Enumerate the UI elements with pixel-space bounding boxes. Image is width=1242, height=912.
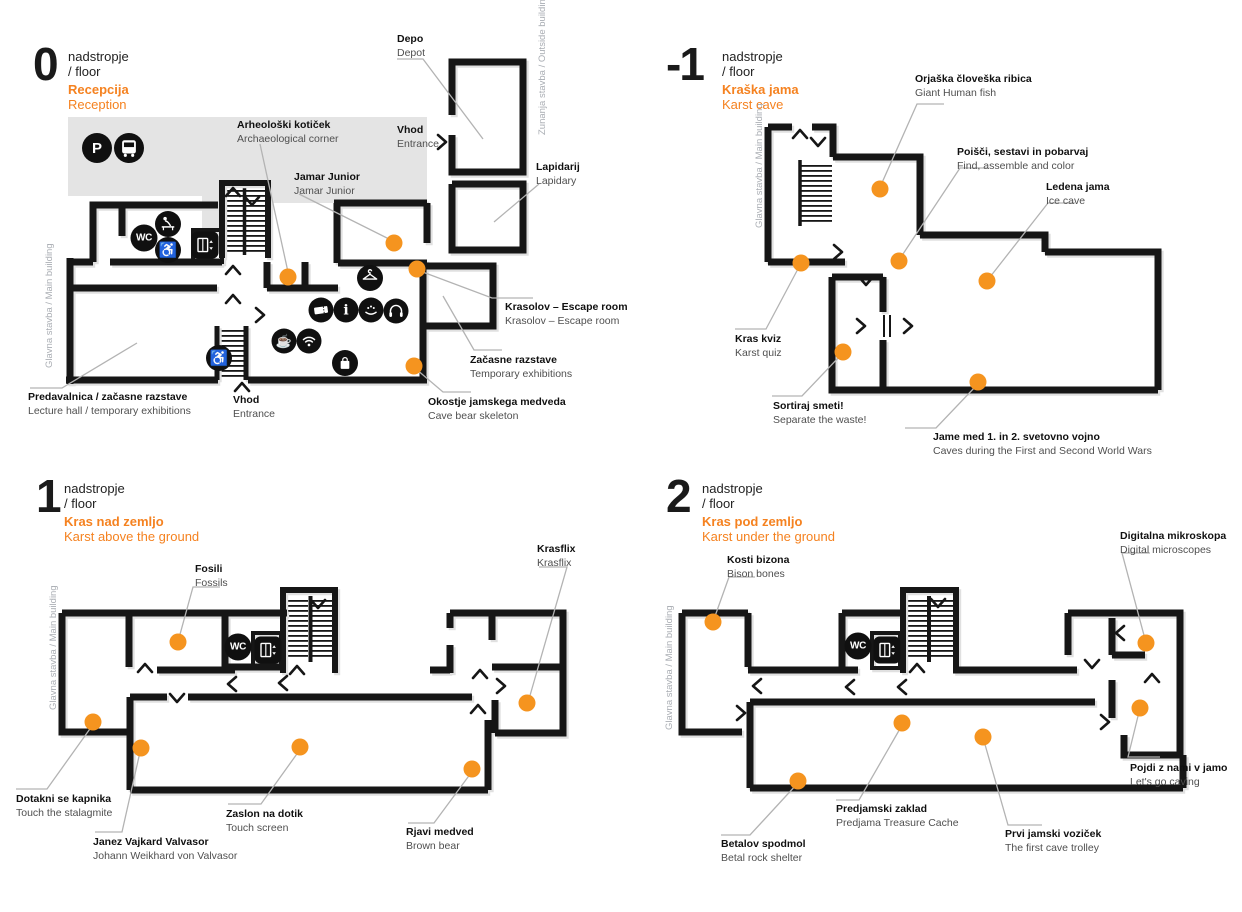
floor-word: / floor — [68, 65, 129, 80]
floor-1-number: 1 — [36, 476, 60, 517]
label-separate-waste: Sortiraj smeti!Separate the waste! — [773, 400, 866, 427]
poi-dot — [793, 255, 810, 272]
floor-1-header: nadstropje / floor Kras nad zemljo Karst… — [64, 482, 199, 544]
poi-dot — [891, 253, 908, 270]
poi-dot — [835, 344, 852, 361]
label-caves-world-wars: Jame med 1. in 2. svetovno vojnoCaves du… — [933, 431, 1152, 458]
label-valvasor: Janez Vajkard ValvasorJohann Weikhard vo… — [93, 836, 237, 863]
door-marks — [884, 315, 890, 337]
wheelchair-lift-icon: ♿ — [206, 345, 232, 371]
cafe-icon: ☕ — [272, 329, 297, 354]
label-karst-quiz: Kras kvizKarst quiz — [735, 333, 782, 360]
elevator-icon — [874, 637, 901, 664]
outside-building-caption: Zunanja stavba / Outside building — [537, 0, 548, 135]
info-icon: i — [334, 298, 359, 323]
parking-icon: P — [82, 133, 112, 163]
shop-bag-icon — [332, 350, 358, 376]
floor-2-title-en: Karst under the ground — [702, 530, 835, 545]
audio-guide-icon — [384, 299, 409, 324]
floor-2-title-sl: Kras pod zemljo — [702, 515, 835, 530]
poi-dot — [133, 740, 150, 757]
poi-dot — [790, 773, 807, 790]
floor-0-title-en: Reception — [68, 98, 129, 113]
poi-dot — [409, 261, 426, 278]
floor--1-header: nadstropje / floor Kraška jama Karst cav… — [722, 50, 799, 112]
poi-dot — [85, 714, 102, 731]
ticket-icon — [309, 298, 334, 323]
bus-icon — [114, 133, 144, 163]
poi-dot — [519, 695, 536, 712]
poi-dot — [280, 269, 297, 286]
floor-2-number: 2 — [666, 476, 690, 517]
label-jamar-junior: Jamar JuniorJamar Junior — [294, 171, 360, 198]
floor-word: / floor — [702, 497, 835, 512]
level-word: nadstropje — [68, 50, 129, 65]
label-first-cave-trolley: Prvi jamski vozičekThe first cave trolle… — [1005, 828, 1101, 855]
label-predjama-treasure: Predjamski zakladPredjama Treasure Cache — [836, 803, 959, 830]
label-ice-cave: Ledena jamaIce cave — [1046, 181, 1110, 208]
label-betal-rock-shelter: Betalov spodmolBetal rock shelter — [721, 838, 806, 865]
poi-dot — [894, 715, 911, 732]
label-giant-human-fish: Orjaška človeška ribicaGiant Human fish — [915, 73, 1032, 100]
poi-dot — [705, 614, 722, 631]
label-depot: DepoDepot — [397, 33, 425, 60]
floor-word: / floor — [722, 65, 799, 80]
poi-dot — [292, 739, 309, 756]
label-fossils: FosiliFossils — [195, 563, 228, 590]
elevator-icon — [192, 232, 219, 259]
baby-changing-icon — [155, 211, 181, 237]
wifi-icon — [297, 329, 322, 354]
wheelchair-icon: ♿ — [155, 237, 181, 263]
label-lets-go-caving: Pojdi z nami v jamoLet's go caving — [1130, 762, 1227, 789]
label-touch-screen: Zaslon na dotikTouch screen — [226, 808, 303, 835]
label-bison-bones: Kosti bizonaBison bones — [727, 554, 789, 581]
floor-0-number: 0 — [33, 44, 57, 85]
poi-dot — [1138, 635, 1155, 652]
main-building-caption-floor-1: Glavna stavba / Main building — [754, 103, 765, 228]
level-word: nadstropje — [722, 50, 799, 65]
level-word: nadstropje — [64, 482, 199, 497]
floor--1-title-sl: Kraška jama — [722, 83, 799, 98]
poi-dot — [975, 729, 992, 746]
hand-icon — [359, 298, 384, 323]
poi-dot — [1132, 700, 1149, 717]
poi-dot — [872, 181, 889, 198]
floor--1-number: -1 — [666, 44, 703, 85]
poi-dot — [170, 634, 187, 651]
label-cave-bear-skeleton: Okostje jamskega medvedaCave bear skelet… — [428, 396, 566, 423]
floor-0-header: nadstropje / floor Recepcija Reception — [68, 50, 129, 112]
wc-icon: WC — [225, 634, 252, 661]
cloakroom-hanger-icon — [357, 265, 383, 291]
label-escape-room: Krasolov – Escape roomKrasolov – Escape … — [505, 301, 628, 328]
poi-dot — [406, 358, 423, 375]
label-archaeological-corner: Arheološki kotičekArchaeological corner — [237, 119, 339, 146]
floor-0-title-sl: Recepcija — [68, 83, 129, 98]
label-touch-stalagmite: Dotakni se kapnikaTouch the stalagmite — [16, 793, 112, 820]
label-digital-microscopes: Digitalna mikroskopaDigital microscopes — [1120, 530, 1226, 557]
poi-dot — [979, 273, 996, 290]
floor-1-title-sl: Kras nad zemljo — [64, 515, 199, 530]
floor--1-title-en: Karst cave — [722, 98, 799, 113]
label-krasflix: KrasflixKrasflix — [537, 543, 576, 570]
wc-icon: WC — [131, 225, 158, 252]
floor-1-title-en: Karst above the ground — [64, 530, 199, 545]
label-entrance-top: VhodEntrance — [397, 124, 439, 151]
museum-floor-plan-page: Glavna stavba / Main building Zunanja st… — [0, 0, 1242, 912]
label-lapidary: LapidarijLapidary — [536, 161, 580, 188]
poi-dot — [970, 374, 987, 391]
label-lecture-hall: Predavalnica / začasne razstaveLecture h… — [28, 391, 191, 418]
label-find-assemble-color: Poišči, sestavi in pobarvajFind, assembl… — [957, 146, 1088, 173]
main-building-caption-floor0: Glavna stavba / Main building — [44, 243, 55, 368]
level-word: nadstropje — [702, 482, 835, 497]
floor-word: / floor — [64, 497, 199, 512]
label-temporary-exhibitions: Začasne razstaveTemporary exhibitions — [470, 354, 572, 381]
elevator-icon — [255, 637, 282, 664]
label-brown-bear: Rjavi medvedBrown bear — [406, 826, 474, 853]
poi-dot — [464, 761, 481, 778]
wc-icon: WC — [845, 633, 872, 660]
main-building-caption-floor2: Glavna stavba / Main building — [664, 605, 675, 730]
label-entrance-bottom: VhodEntrance — [233, 394, 275, 421]
poi-dot — [386, 235, 403, 252]
floor-2-header: nadstropje / floor Kras pod zemljo Karst… — [702, 482, 835, 544]
main-building-caption-floor1: Glavna stavba / Main building — [48, 585, 59, 710]
